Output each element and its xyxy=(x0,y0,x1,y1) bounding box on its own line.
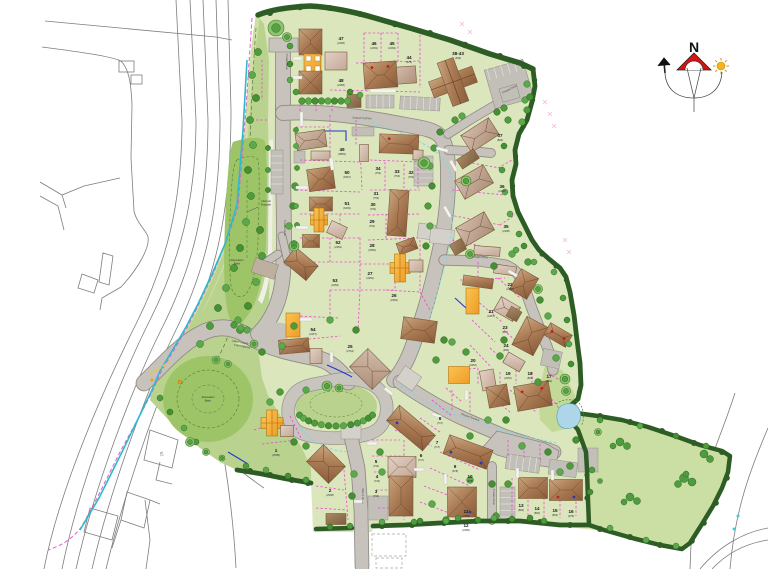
svg-text:(2469): (2469) xyxy=(334,245,342,249)
svg-text:22: 22 xyxy=(507,282,513,287)
svg-text:(6493): (6493) xyxy=(343,206,351,210)
svg-text:48: 48 xyxy=(338,78,344,83)
svg-text:(978): (978) xyxy=(568,514,574,518)
svg-text:19: 19 xyxy=(505,371,511,376)
svg-text:14: 14 xyxy=(534,506,540,511)
svg-text:54: 54 xyxy=(310,327,316,332)
svg-text:20: 20 xyxy=(470,358,476,363)
svg-text:3: 3 xyxy=(375,489,378,494)
svg-text:Morris Drive: Morris Drive xyxy=(361,488,365,504)
svg-text:Private Drive: Private Drive xyxy=(283,220,287,236)
svg-text:37: 37 xyxy=(497,133,503,138)
svg-text:(734): (734) xyxy=(373,464,379,468)
svg-text:21: 21 xyxy=(488,309,494,314)
svg-text:(890): (890) xyxy=(518,508,524,512)
svg-text:(639): (639) xyxy=(455,56,461,60)
svg-text:44: 44 xyxy=(406,55,412,60)
svg-text:(754): (754) xyxy=(394,174,400,178)
svg-text:(734): (734) xyxy=(374,479,380,483)
svg-text:Private Drive: Private Drive xyxy=(492,489,496,505)
svg-text:49: 49 xyxy=(339,147,345,152)
svg-text:Footpath: Footpath xyxy=(261,203,272,207)
svg-text:(2489): (2489) xyxy=(462,514,470,518)
svg-text:(990): (990) xyxy=(502,330,508,334)
svg-text:30: 30 xyxy=(370,202,376,207)
svg-text:12: 12 xyxy=(463,523,469,528)
svg-text:Shared Surface: Shared Surface xyxy=(352,116,372,121)
svg-text:25: 25 xyxy=(347,344,353,349)
svg-text:33: 33 xyxy=(394,169,400,174)
svg-text:9: 9 xyxy=(454,464,457,469)
svg-text:Basin: Basin xyxy=(205,399,212,403)
svg-text:(756): (756) xyxy=(373,196,379,200)
svg-text:52: 52 xyxy=(159,451,165,457)
svg-text:51: 51 xyxy=(344,201,350,206)
svg-text:(890): (890) xyxy=(497,138,503,142)
svg-text:10: 10 xyxy=(467,474,473,479)
svg-text:(2452): (2452) xyxy=(504,376,512,380)
svg-text:16: 16 xyxy=(568,509,574,514)
svg-text:4: 4 xyxy=(376,474,379,479)
svg-text:(3459): (3459) xyxy=(366,276,374,280)
svg-text:(978): (978) xyxy=(467,479,473,483)
svg-text:5: 5 xyxy=(375,459,378,464)
svg-text:(2469): (2469) xyxy=(370,46,378,50)
svg-text:11: 11 xyxy=(464,509,469,514)
svg-text:27: 27 xyxy=(367,271,373,276)
svg-text:(890): (890) xyxy=(552,513,558,517)
svg-text:46: 46 xyxy=(371,41,377,46)
svg-text:29: 29 xyxy=(369,219,375,224)
svg-text:7: 7 xyxy=(436,440,439,445)
svg-text:1: 1 xyxy=(275,448,278,453)
svg-text:(890): (890) xyxy=(546,379,552,383)
svg-text:18: 18 xyxy=(527,371,533,376)
svg-text:(6859): (6859) xyxy=(338,152,346,156)
svg-text:(754): (754) xyxy=(369,224,375,228)
svg-text:(754): (754) xyxy=(375,171,381,175)
svg-text:50: 50 xyxy=(344,170,350,175)
svg-text:(878): (878) xyxy=(406,60,412,64)
svg-text:(2468): (2468) xyxy=(337,83,345,87)
svg-text:28: 28 xyxy=(369,243,375,248)
svg-text:2: 2 xyxy=(329,488,332,493)
svg-text:47: 47 xyxy=(338,36,344,41)
svg-text:(2508): (2508) xyxy=(326,493,334,497)
svg-text:23: 23 xyxy=(502,325,508,330)
svg-text:Attenuation: Attenuation xyxy=(201,395,215,399)
svg-text:(2489): (2489) xyxy=(462,528,470,532)
svg-text:Informal: Informal xyxy=(261,199,271,203)
svg-text:(2452): (2452) xyxy=(506,287,514,291)
svg-text:34: 34 xyxy=(375,166,381,171)
svg-text:(978): (978) xyxy=(452,469,458,473)
svg-text:Attenuation: Attenuation xyxy=(230,258,244,262)
svg-text:26: 26 xyxy=(391,293,397,298)
svg-text:13: 13 xyxy=(518,503,524,508)
svg-text:(2467): (2467) xyxy=(309,332,317,336)
svg-text:(2508): (2508) xyxy=(272,453,280,457)
svg-text:35: 35 xyxy=(503,224,509,229)
svg-text:52: 52 xyxy=(335,240,341,245)
svg-text:(754): (754) xyxy=(408,175,414,179)
svg-text:(717): (717) xyxy=(437,421,443,425)
svg-text:(2498): (2498) xyxy=(498,189,506,193)
svg-text:53: 53 xyxy=(332,278,338,283)
svg-text:17: 17 xyxy=(546,374,552,379)
svg-text:36: 36 xyxy=(499,184,505,189)
svg-text:(717): (717) xyxy=(418,458,424,462)
svg-text:(2469): (2469) xyxy=(388,46,396,50)
svg-text:(2764): (2764) xyxy=(346,349,354,353)
svg-text:6: 6 xyxy=(420,453,423,458)
svg-text:(2369): (2369) xyxy=(390,298,398,302)
svg-text:(2467): (2467) xyxy=(487,314,495,318)
svg-text:32: 32 xyxy=(408,170,414,175)
svg-text:(2456): (2456) xyxy=(331,283,339,287)
svg-text:Basin: Basin xyxy=(234,262,241,266)
svg-text:(2452): (2452) xyxy=(469,363,477,367)
svg-text:(3459): (3459) xyxy=(368,248,376,252)
svg-text:15: 15 xyxy=(552,508,558,513)
svg-text:(2468): (2468) xyxy=(337,41,345,45)
svg-text:(754): (754) xyxy=(370,207,376,211)
svg-text:(734): (734) xyxy=(373,494,379,498)
svg-text:8: 8 xyxy=(439,416,442,421)
svg-text:24: 24 xyxy=(503,343,509,348)
svg-text:(6367): (6367) xyxy=(343,175,351,179)
svg-text:31: 31 xyxy=(373,191,379,196)
svg-text:(2498): (2498) xyxy=(502,229,510,233)
svg-text:Private Drive: Private Drive xyxy=(285,54,289,70)
svg-text:(890): (890) xyxy=(527,376,533,380)
svg-text:38-43: 38-43 xyxy=(452,51,464,56)
svg-text:(717): (717) xyxy=(434,445,440,449)
svg-text:(990): (990) xyxy=(503,348,509,352)
svg-text:(890): (890) xyxy=(534,511,540,515)
svg-text:45: 45 xyxy=(389,41,395,46)
